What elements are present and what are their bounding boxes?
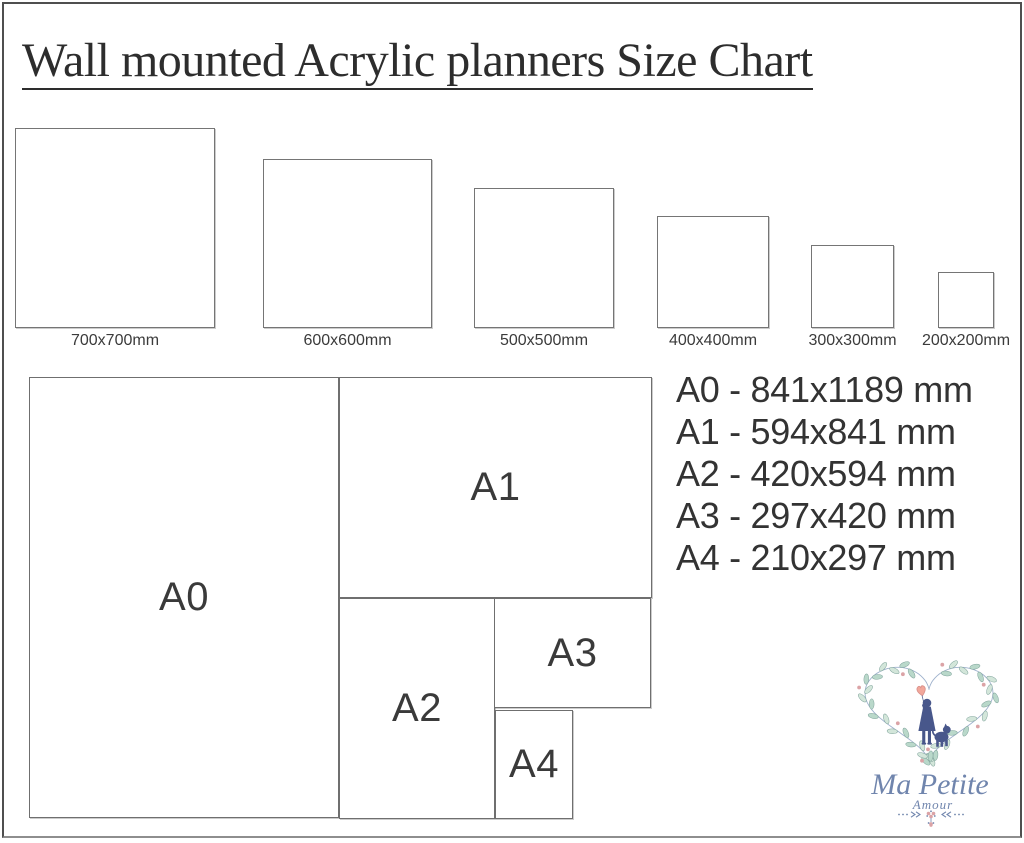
size-square-400x400mm	[657, 216, 769, 328]
paper-box-a0: A0	[29, 377, 339, 818]
paper-label-a0: A0	[159, 575, 209, 620]
paper-box-a3: A3	[494, 598, 651, 708]
size-list-item-a2: A2 - 420x594 mm	[676, 453, 973, 495]
brand-logo: Ma PetiteAmour	[843, 648, 1023, 840]
logo-subtitle: Amour	[912, 797, 953, 812]
size-square-200x200mm	[938, 272, 994, 328]
girl-with-balloon-icon	[916, 685, 950, 747]
paper-label-a2: A2	[392, 686, 442, 731]
size-list: A0 - 841x1189 mm A1 - 594x841 mm A2 - 42…	[676, 369, 973, 579]
size-square-600x600mm	[263, 159, 432, 328]
size-square-label: 600x600mm	[278, 332, 418, 350]
size-square-label: 400x400mm	[643, 332, 783, 350]
logo-text: Ma PetiteAmour	[870, 768, 988, 827]
paper-box-a2: A2	[339, 598, 495, 819]
size-list-item-a3: A3 - 297x420 mm	[676, 495, 973, 537]
size-square-label: 500x500mm	[474, 332, 614, 350]
size-list-item-a4: A4 - 210x297 mm	[676, 537, 973, 579]
paper-label-a3: A3	[548, 631, 598, 676]
size-list-item-a0: A0 - 841x1189 mm	[676, 369, 973, 411]
paper-label-a4: A4	[509, 742, 559, 787]
size-square-500x500mm	[474, 188, 614, 328]
size-square-700x700mm	[15, 128, 215, 328]
size-square-label: 700x700mm	[45, 332, 185, 350]
size-square-300x300mm	[811, 245, 894, 328]
paper-label-a1: A1	[471, 465, 521, 510]
paper-box-a4: A4	[495, 710, 573, 819]
flourish-icon	[898, 810, 964, 827]
page-title: Wall mounted Acrylic planners Size Chart	[22, 36, 813, 90]
size-square-label: 200x200mm	[896, 332, 1024, 350]
paper-box-a1: A1	[339, 377, 652, 598]
size-list-item-a1: A1 - 594x841 mm	[676, 411, 973, 453]
